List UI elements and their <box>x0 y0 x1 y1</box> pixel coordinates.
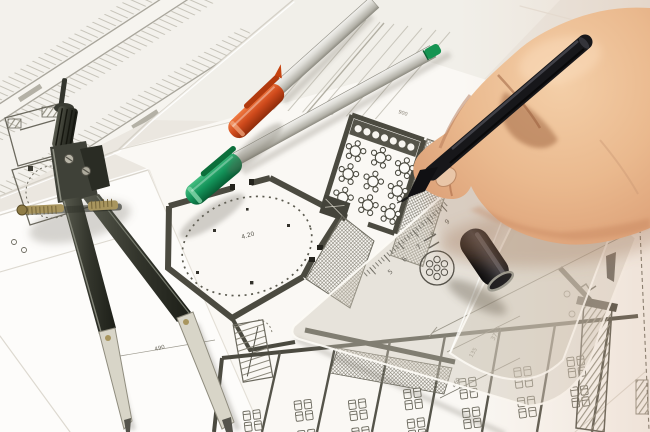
door-jamb <box>28 166 33 171</box>
photo-stage: 4.20 900 <box>0 0 650 432</box>
blueprint-photo: 4.20 900 <box>0 0 650 432</box>
